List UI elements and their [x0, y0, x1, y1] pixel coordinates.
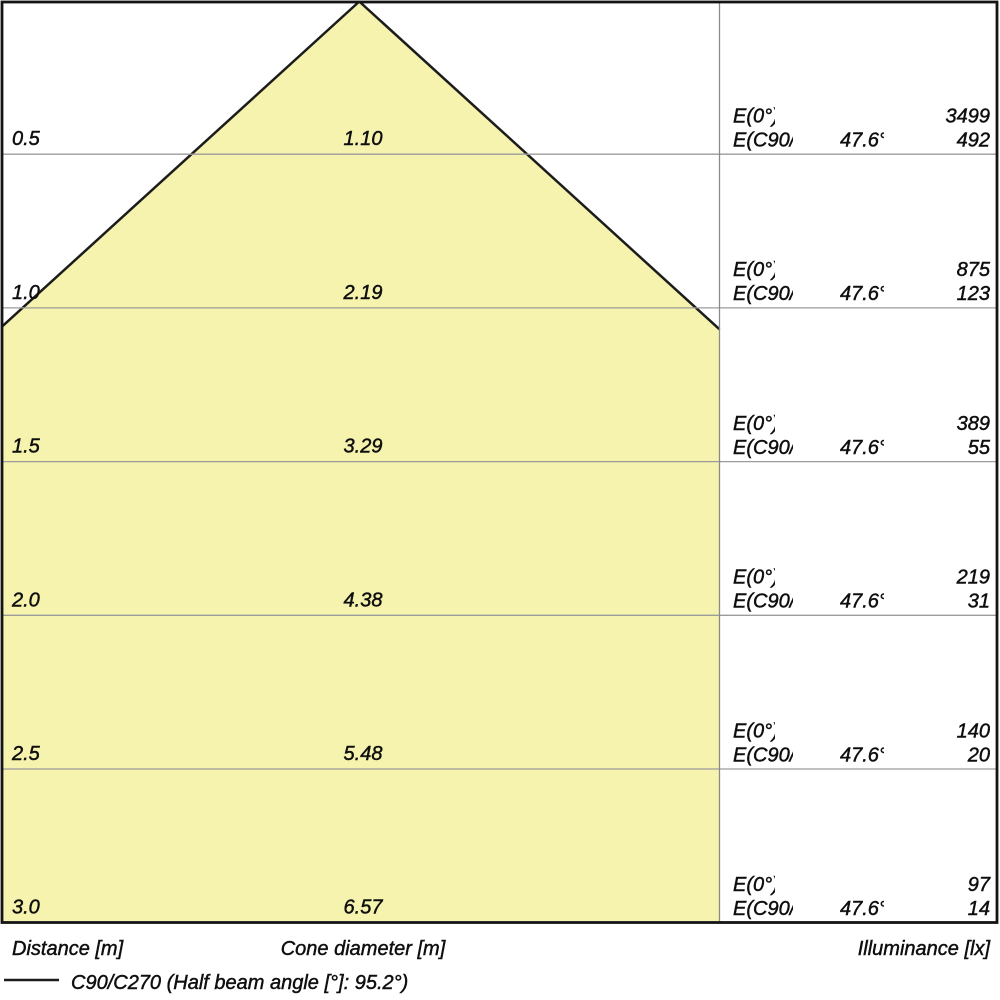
svg-text:140: 140 — [957, 720, 990, 742]
svg-text:875: 875 — [957, 259, 991, 281]
svg-text:47.6°: 47.6° — [840, 437, 887, 459]
svg-text:E(C90/270): E(C90/270) — [733, 591, 835, 613]
svg-text:14: 14 — [968, 898, 990, 920]
svg-text:4.38: 4.38 — [344, 589, 383, 611]
svg-text:55: 55 — [968, 437, 991, 459]
svg-text:47.6°: 47.6° — [840, 130, 887, 152]
svg-text:Cone diameter [m]: Cone diameter [m] — [281, 938, 446, 960]
svg-text:389: 389 — [957, 413, 990, 435]
svg-text:Illuminance [lx]: Illuminance [lx] — [858, 938, 991, 960]
svg-text:Distance [m]: Distance [m] — [12, 938, 124, 960]
svg-text:2.0: 2.0 — [11, 589, 40, 611]
svg-text:3499: 3499 — [946, 106, 991, 128]
svg-text:1.0: 1.0 — [12, 282, 40, 304]
svg-text:3.29: 3.29 — [344, 436, 383, 458]
svg-text:E(C90/270): E(C90/270) — [733, 283, 835, 305]
svg-text:E(0°): E(0°) — [733, 259, 779, 281]
svg-text:2.5: 2.5 — [11, 743, 41, 765]
svg-text:219: 219 — [956, 567, 990, 589]
svg-text:C90/C270 (Half beam angle [°]:: C90/C270 (Half beam angle [°]: 95.2°) — [71, 972, 408, 994]
svg-text:3.0: 3.0 — [12, 897, 40, 919]
svg-text:31: 31 — [968, 591, 990, 613]
svg-text:20: 20 — [967, 744, 990, 766]
svg-text:47.6°: 47.6° — [840, 283, 887, 305]
svg-text:E(C90/270): E(C90/270) — [733, 744, 835, 766]
svg-text:5.48: 5.48 — [344, 743, 383, 765]
svg-text:47.6°: 47.6° — [840, 744, 887, 766]
svg-text:E(C90/270): E(C90/270) — [733, 898, 835, 920]
svg-text:E(0°): E(0°) — [733, 106, 779, 128]
svg-text:E(0°): E(0°) — [733, 720, 779, 742]
svg-text:6.57: 6.57 — [344, 897, 384, 919]
svg-text:E(0°): E(0°) — [733, 874, 779, 896]
svg-text:47.6°: 47.6° — [840, 898, 887, 920]
svg-text:97: 97 — [968, 874, 991, 896]
svg-text:492: 492 — [957, 130, 990, 152]
svg-text:1.10: 1.10 — [344, 128, 383, 150]
svg-text:1.5: 1.5 — [12, 436, 41, 458]
svg-text:E(C90/270): E(C90/270) — [733, 130, 835, 152]
svg-text:2.19: 2.19 — [343, 282, 383, 304]
svg-text:123: 123 — [957, 283, 990, 305]
svg-text:E(0°): E(0°) — [733, 413, 779, 435]
svg-text:0.5: 0.5 — [12, 128, 41, 150]
svg-text:E(C90/270): E(C90/270) — [733, 437, 835, 459]
svg-text:E(0°): E(0°) — [733, 567, 779, 589]
svg-text:47.6°: 47.6° — [840, 591, 887, 613]
